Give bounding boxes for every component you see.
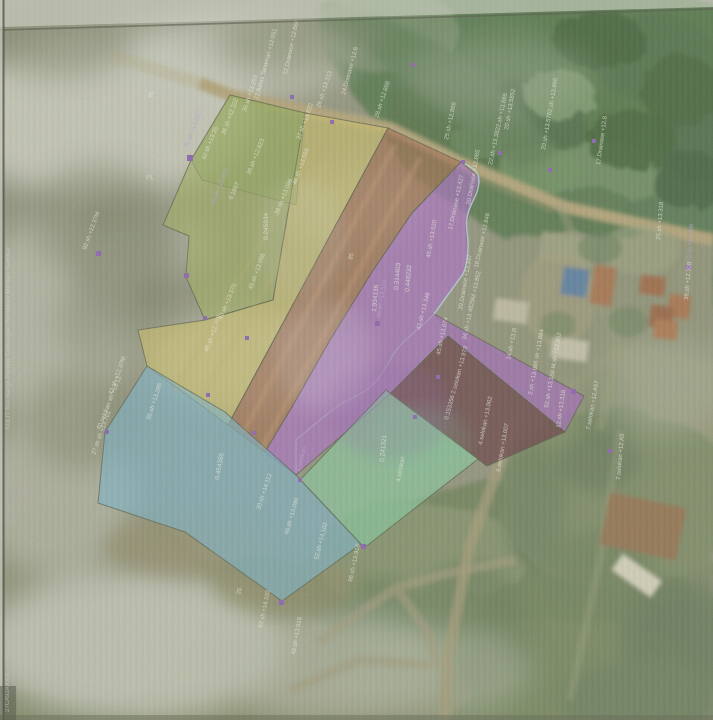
svg-text:27CA92AXXIX: 27CA92AXXIX (5, 673, 11, 712)
svg-text:SULIT BIA Harga Pemilik Cadan: SULIT BIA Harga Pemilik Cadangan Pemilik… (5, 246, 12, 430)
